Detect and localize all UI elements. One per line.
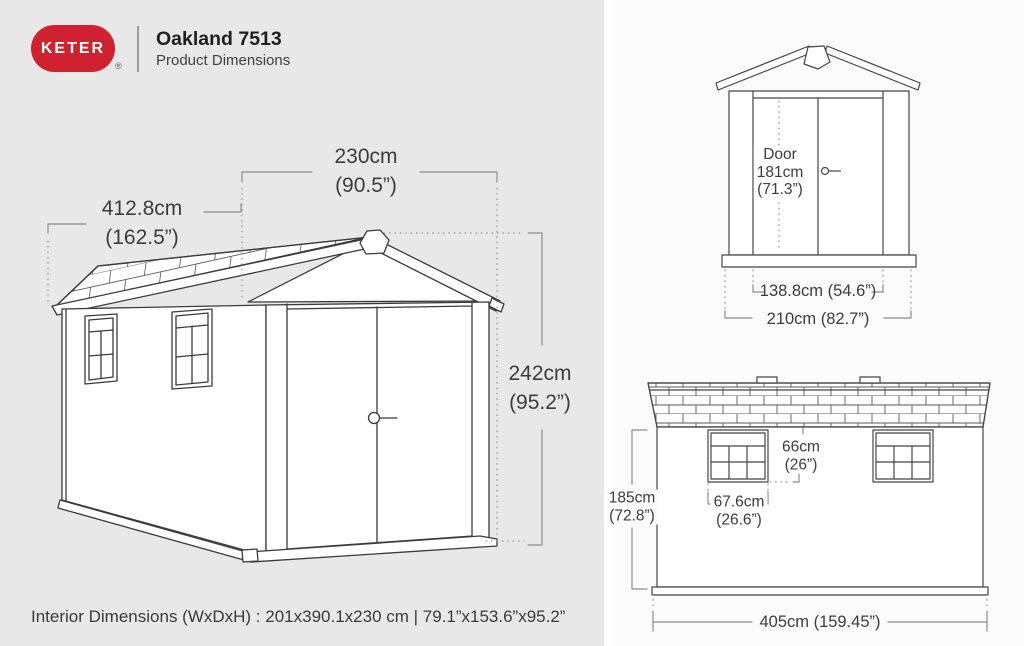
- door-in: (71.3”): [757, 181, 803, 199]
- front-roof-left: [716, 46, 811, 90]
- keter-logo: KETER: [31, 25, 115, 72]
- inner-width-text: 138.8cm (54.6”): [760, 282, 876, 300]
- registered-trademark-symbol: ®: [115, 61, 122, 71]
- depth-in: (162.5”): [105, 223, 179, 252]
- interior-dimensions-note: Interior Dimensions (WxDxH) : 201x390.1x…: [31, 607, 565, 627]
- window-width-in: (26.6”): [716, 511, 762, 529]
- wall-height-cm: 185cm: [609, 490, 656, 508]
- window-height-cm: 66cm: [782, 439, 820, 457]
- page-title: Oakland 7513: [156, 28, 290, 50]
- side-elevation-drawing: [648, 377, 990, 595]
- wall-height-in: (72.8”): [609, 507, 655, 525]
- dim-label-depth: 412.8cm (162.5”): [102, 194, 183, 252]
- height-cm: 242cm: [508, 359, 571, 388]
- shed-window-back: [85, 314, 117, 384]
- shed-base-jog: [242, 549, 258, 562]
- window-height-in: (26”): [785, 456, 818, 474]
- side-roof-clip-right: [860, 377, 880, 383]
- shed-door-handle: [369, 413, 380, 424]
- dim-label-outer-width: 210cm (82.7”): [767, 310, 870, 328]
- dim-label-window-height: 66cm (26”): [779, 439, 823, 474]
- dim-label-width: 230cm (90.5”): [334, 142, 397, 200]
- outer-width-text: 210cm (82.7”): [767, 310, 870, 328]
- dim-label-height: 242cm (95.2”): [508, 359, 571, 417]
- brand-name: KETER: [41, 40, 105, 58]
- main-shed-drawing: [52, 230, 504, 562]
- side-plinth: [652, 587, 988, 595]
- dim-label-total-width: 405cm (159.45”): [756, 613, 883, 631]
- side-roof-clip-left: [757, 377, 777, 383]
- width-in: (90.5”): [335, 171, 397, 200]
- side-window-left: [708, 430, 768, 482]
- dim-label-door: Door 181cm (71.3”): [754, 146, 807, 199]
- total-width-text: 405cm (159.45”): [759, 613, 880, 631]
- window-width-cm: 67.6cm: [714, 494, 765, 512]
- front-elevation-drawing: [716, 46, 920, 267]
- front-roof-right: [825, 46, 920, 90]
- dim-label-window-width: 67.6cm (26.6”): [711, 494, 768, 529]
- title-block: Oakland 7513 Product Dimensions: [156, 28, 290, 70]
- side-window-right: [873, 430, 933, 482]
- width-cm: 230cm: [334, 142, 397, 171]
- page-subtitle: Product Dimensions: [156, 52, 290, 70]
- height-in: (95.2”): [509, 388, 571, 417]
- door-word: Door: [763, 146, 797, 164]
- shed-window-front: [172, 309, 212, 389]
- shed-roof-fascia-tip: [489, 298, 504, 312]
- door-cm: 181cm: [757, 163, 804, 181]
- depth-cm: 412.8cm: [102, 194, 183, 223]
- dim-label-inner-width: 138.8cm (54.6”): [760, 282, 876, 300]
- front-door-handle: [822, 168, 829, 175]
- dimension-diagrams: [0, 0, 1024, 646]
- dim-label-wall-height: 185cm (72.8”): [606, 490, 659, 525]
- front-plinth: [722, 255, 916, 267]
- header-divider: [137, 26, 139, 72]
